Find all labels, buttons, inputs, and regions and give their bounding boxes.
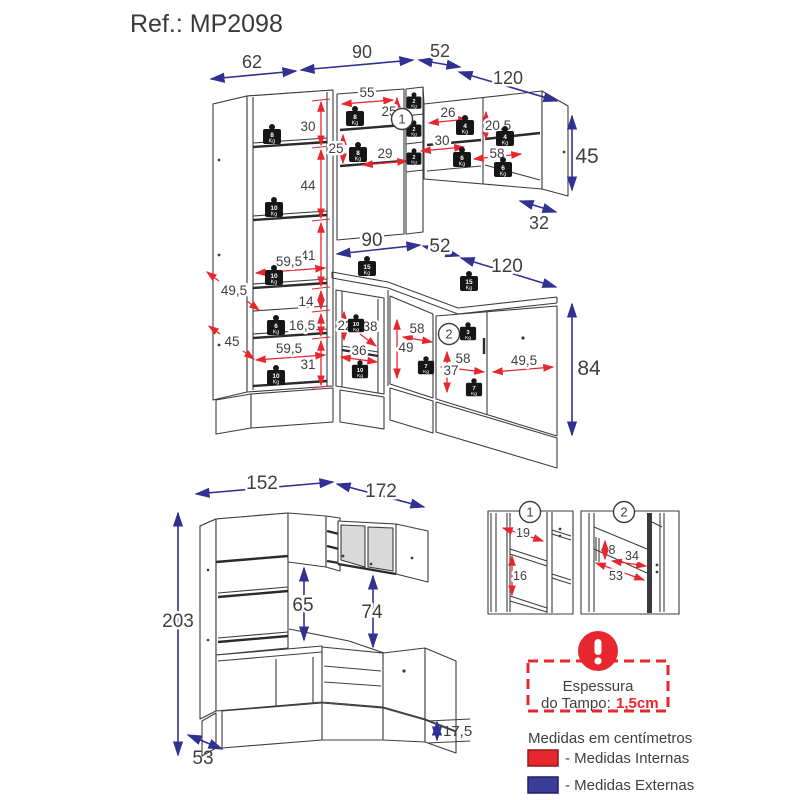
dim-52-mid: 52 — [423, 236, 459, 257]
dim-label: 65 — [292, 595, 313, 616]
dim-label: 49,5 — [221, 283, 247, 298]
detail-box-2: 2 8 34 53 — [581, 502, 679, 615]
svg-text:Kg: Kg — [273, 380, 280, 386]
dim-label: 34 — [625, 549, 639, 563]
dim-label: 84 — [577, 357, 601, 380]
legend: Espessura do Tampo: 1,5cm Medidas em cen… — [528, 631, 694, 794]
dim-62: 62 — [211, 52, 296, 79]
dim-label: 8 — [609, 543, 616, 557]
dim-label: 152 — [246, 473, 278, 494]
detail-2-callout: 2 — [614, 502, 635, 523]
dim-label: 17,5 — [443, 723, 472, 740]
dim-label: 19 — [516, 526, 530, 540]
tall-cabinet: 30 44 41 14 16,5 31 59,5 59,5 49,5 — [207, 90, 333, 434]
legend-external-label: - Medidas Externas — [565, 777, 694, 794]
warning-icon — [578, 631, 618, 671]
svg-text:Kg: Kg — [462, 130, 469, 136]
dim-label: 45 — [575, 145, 598, 168]
weight-15kg: 15Kg — [358, 256, 376, 277]
dim-label: 44 — [300, 178, 316, 193]
legend-units: Medidas em centímetros — [528, 730, 692, 747]
dim-label: 52 — [429, 236, 450, 257]
dim-label: 31 — [300, 357, 315, 372]
dim-label: 49 — [398, 340, 413, 355]
dim-label: 59,5 — [276, 254, 302, 269]
lower-glass-cabinet — [338, 521, 428, 582]
svg-text:Kg: Kg — [471, 391, 477, 397]
dim-90: 90 — [301, 42, 413, 70]
dim-label: 26 — [440, 105, 455, 120]
dim-label: 120 — [491, 256, 523, 277]
glass-door-left — [341, 525, 365, 567]
dim-203: 203 — [162, 513, 194, 755]
detail-1-callout: 1 — [520, 502, 541, 523]
svg-text:Kg: Kg — [271, 212, 278, 218]
corner-column: 2Kg 2Kg 2Kg — [406, 87, 424, 234]
callout-1: 1 — [392, 109, 413, 130]
dim-label: 62 — [242, 52, 262, 72]
dim-label: 49,5 — [511, 353, 537, 368]
dim-label: 36 — [351, 343, 366, 358]
upper-diagram: 30 44 41 14 16,5 31 59,5 59,5 49,5 — [207, 41, 601, 468]
svg-text:Kg: Kg — [411, 160, 417, 165]
dim-152: 152 — [196, 473, 333, 494]
dim-label: 38 — [362, 319, 377, 334]
svg-text:2: 2 — [620, 505, 627, 520]
legend-internal-label: - Medidas Internas — [565, 750, 689, 767]
dim-74: 74 — [361, 576, 383, 647]
svg-text:Kg: Kg — [273, 330, 280, 336]
dim-52: 52 — [419, 41, 460, 67]
dim-label: 74 — [361, 602, 383, 623]
dim-label: 37 — [443, 363, 458, 378]
dim-label: 90 — [352, 42, 372, 62]
dim-label: 30 — [300, 119, 315, 134]
dim-label: 58 — [409, 321, 424, 336]
dim-label: 53 — [609, 569, 623, 583]
svg-text:Kg: Kg — [352, 121, 359, 127]
svg-text:Kg: Kg — [465, 335, 471, 341]
lower-diagram: 152 172 203 — [162, 473, 472, 769]
page-title: Ref.: MP2098 — [130, 10, 283, 38]
svg-text:2: 2 — [445, 327, 452, 342]
thickness-note-line1: Espessura — [563, 678, 635, 695]
svg-text:Kg: Kg — [500, 172, 507, 178]
thickness-note-line2: do Tampo: 1,5cm — [541, 695, 659, 712]
dim-label: 55 — [359, 85, 374, 100]
external-color-swatch — [528, 777, 558, 793]
svg-text:Kg: Kg — [271, 280, 278, 286]
dim-label: 30 — [434, 133, 449, 148]
dim-label: 172 — [365, 481, 397, 502]
base-corner-cabinet: 58 49 7Kg — [388, 290, 434, 398]
svg-text:Kg: Kg — [459, 162, 466, 168]
lower-mid-cabinet — [288, 513, 340, 571]
dim-label: 53 — [192, 748, 213, 769]
dim-label: 16 — [513, 569, 527, 583]
dim-label: 90 — [361, 230, 382, 251]
dim-label: 203 — [162, 611, 194, 632]
svg-text:Kg: Kg — [353, 327, 359, 333]
mid-upper-cabinet: 55 25 25 29 8Kg 8Kg — [328, 85, 407, 240]
svg-text:Kg: Kg — [411, 104, 417, 109]
dim-label: 120 — [493, 68, 523, 88]
dim-65: 65 — [292, 568, 313, 640]
detail-box-1: 1 19 16 — [488, 502, 573, 615]
dim-45-external: 45 — [572, 116, 599, 190]
dim-label: 16,5 — [289, 318, 315, 333]
dim-label: 52 — [430, 41, 450, 61]
svg-text:Kg: Kg — [355, 157, 362, 163]
dim-label: 14 — [298, 294, 314, 309]
wall-cabinet: 26 20,5 30 58 4Kg 4Kg 6Kg 6Kg 45 — [421, 91, 599, 233]
svg-text:Kg: Kg — [357, 373, 363, 379]
internal-color-swatch — [528, 750, 558, 766]
svg-text:1: 1 — [526, 505, 533, 520]
svg-text:Kg: Kg — [466, 286, 473, 292]
dim-label: 29 — [377, 146, 392, 161]
svg-text:Kg: Kg — [364, 271, 371, 277]
svg-text:Kg: Kg — [502, 141, 509, 147]
dim-label: 45 — [224, 334, 239, 349]
svg-text:1: 1 — [398, 112, 405, 127]
svg-text:Kg: Kg — [411, 132, 417, 137]
svg-text:Kg: Kg — [423, 369, 429, 375]
dim-label: 59,5 — [276, 341, 302, 356]
dim-label: 32 — [529, 213, 549, 233]
svg-text:Kg: Kg — [269, 139, 276, 145]
technical-drawing: Ref.: MP2098 — [0, 0, 800, 800]
weight-15kg: 15Kg — [460, 271, 478, 292]
dim-32-external: 32 — [520, 201, 556, 233]
dim-84-external: 84 — [572, 304, 601, 435]
base-mid-cabinet: 22 38 36 10Kg 10Kg — [336, 290, 384, 394]
dim-172: 172 — [337, 481, 424, 507]
dim-label: 41 — [300, 248, 315, 263]
callout-2: 2 — [439, 324, 460, 345]
dim-label: 25 — [328, 141, 343, 156]
